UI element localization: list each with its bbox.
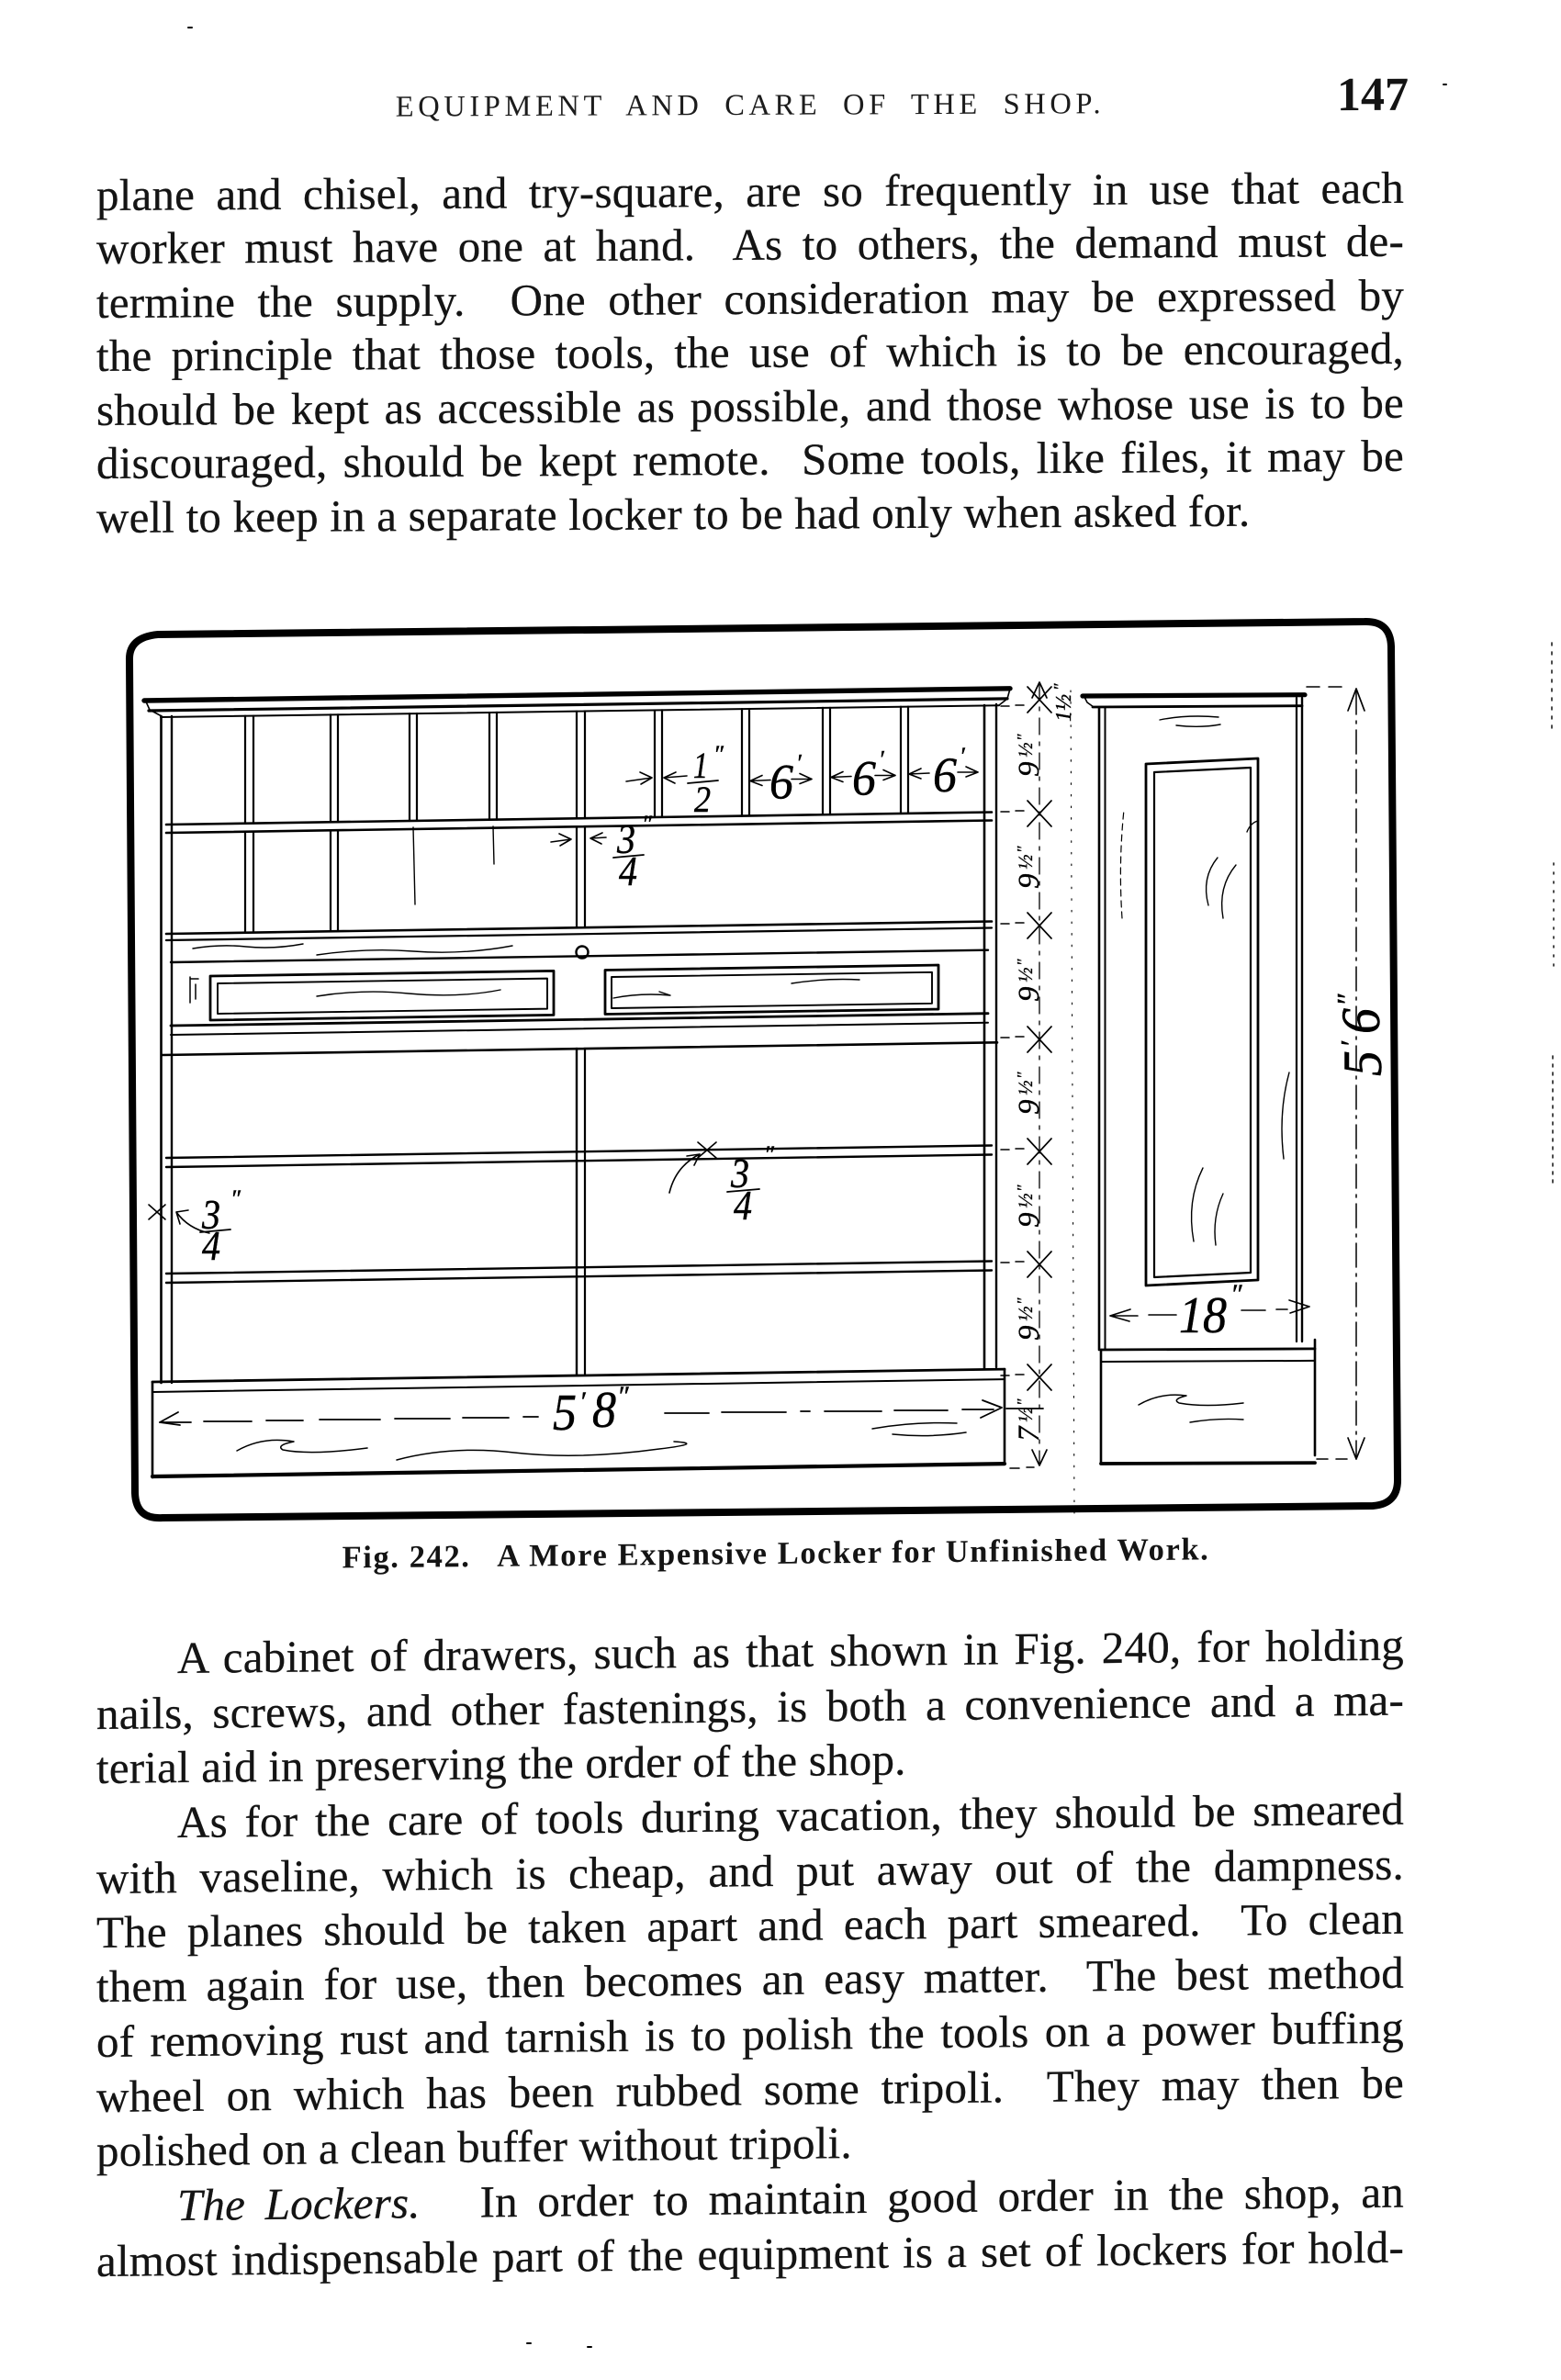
svg-text:″: ″ — [1014, 846, 1032, 853]
svg-text:1½: 1½ — [1052, 694, 1076, 722]
svg-text:″: ″ — [713, 741, 724, 768]
svg-text:′: ′ — [960, 743, 965, 769]
svg-text:6: 6 — [933, 747, 957, 803]
svg-text:′: ′ — [879, 747, 884, 773]
svg-text:9: 9 — [1013, 1100, 1046, 1116]
svg-text:5: 5 — [553, 1385, 577, 1442]
svg-text:″: ″ — [1014, 1072, 1032, 1079]
svg-text:9: 9 — [1013, 987, 1046, 1003]
svg-text:9: 9 — [1013, 762, 1046, 778]
svg-text:″: ″ — [1331, 994, 1364, 1006]
svg-text:″: ″ — [1014, 1184, 1032, 1192]
svg-text:½: ½ — [1014, 1194, 1037, 1209]
svg-text:6: 6 — [769, 755, 793, 810]
svg-text:″: ″ — [1014, 734, 1032, 741]
svg-text:″: ″ — [642, 811, 653, 837]
svg-text:″: ″ — [230, 1185, 241, 1212]
svg-text:18: 18 — [1179, 1287, 1227, 1344]
svg-text:½: ½ — [1014, 968, 1037, 983]
svg-text:½: ½ — [1014, 855, 1037, 870]
svg-text:″: ″ — [1230, 1279, 1242, 1309]
svg-text:9: 9 — [1013, 1213, 1046, 1229]
svg-text:½: ½ — [1014, 1081, 1037, 1096]
svg-text:″: ″ — [764, 1141, 775, 1168]
svg-text:′: ′ — [579, 1386, 586, 1417]
svg-text:½: ½ — [1014, 1307, 1037, 1322]
svg-text:½: ½ — [1014, 1408, 1037, 1423]
svg-text:9: 9 — [1013, 1326, 1046, 1342]
svg-text:″: ″ — [1014, 959, 1032, 966]
svg-text:″: ″ — [617, 1381, 629, 1411]
svg-text:4: 4 — [734, 1182, 752, 1229]
svg-text:4: 4 — [619, 848, 637, 894]
svg-text:′: ′ — [796, 750, 802, 777]
svg-text:″: ″ — [1014, 1297, 1032, 1305]
svg-text:5: 5 — [1332, 1050, 1393, 1076]
svg-text:′: ′ — [1334, 1040, 1367, 1048]
svg-text:6: 6 — [852, 751, 876, 806]
svg-text:″: ″ — [1050, 683, 1069, 690]
svg-text:9: 9 — [1013, 874, 1046, 890]
svg-text:″: ″ — [1014, 1398, 1032, 1406]
svg-text:6: 6 — [1331, 1008, 1391, 1034]
svg-text:8: 8 — [592, 1382, 616, 1439]
svg-text:4: 4 — [202, 1222, 220, 1269]
svg-text:7: 7 — [1013, 1425, 1046, 1442]
svg-text:½: ½ — [1014, 743, 1037, 758]
svg-text:2: 2 — [694, 779, 711, 820]
